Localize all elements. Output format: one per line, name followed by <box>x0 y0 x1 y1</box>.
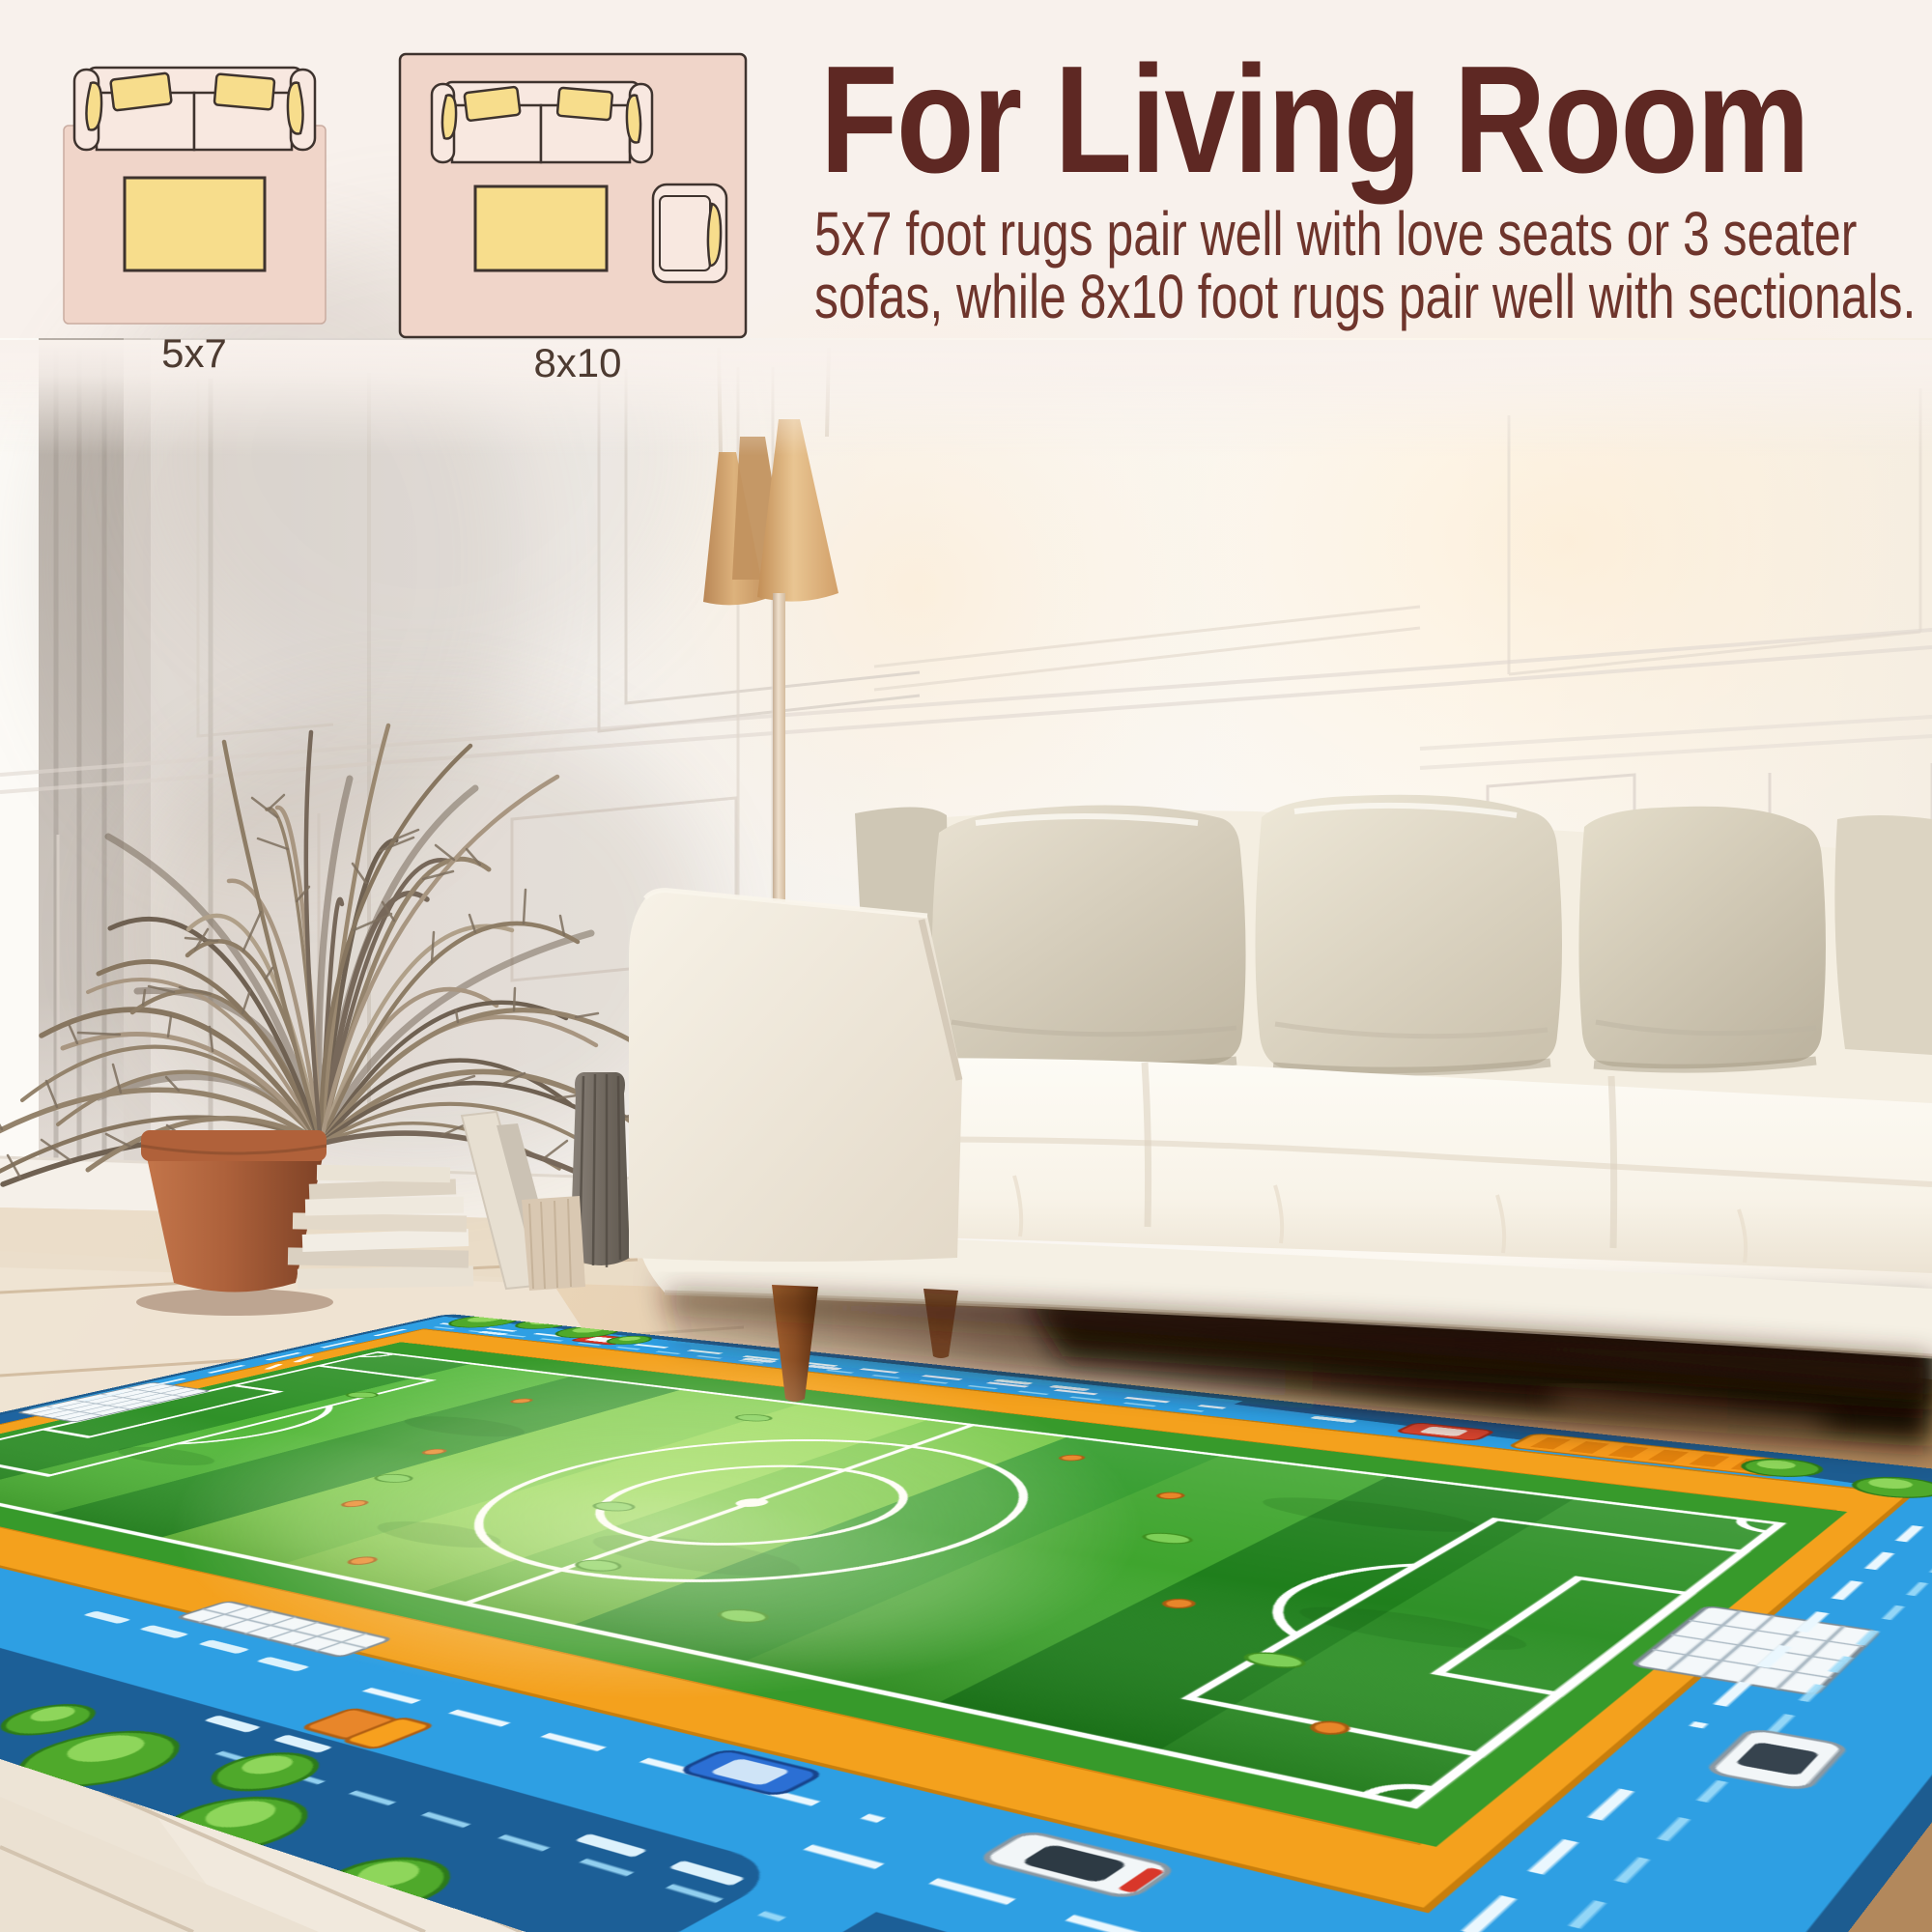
svg-text:8x10: 8x10 <box>533 340 621 385</box>
svg-text:5x7: 5x7 <box>161 330 227 376</box>
